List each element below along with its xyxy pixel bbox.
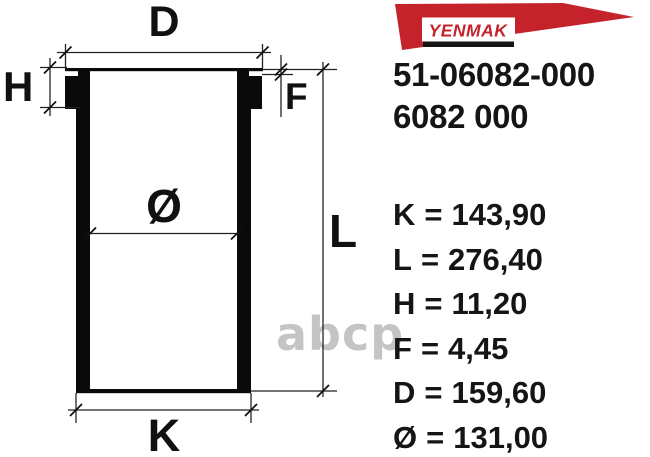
part-number-secondary: 6082 000 xyxy=(393,96,595,138)
liner-right-wall xyxy=(237,109,251,390)
label-collar-step: F xyxy=(285,78,308,115)
spec-row-l: L=276,40 xyxy=(393,238,548,283)
spec-value: 159,60 xyxy=(452,375,547,410)
liner-left-wall xyxy=(76,109,90,390)
spec-row-k: K=143,90 xyxy=(393,193,548,238)
spec-name: L xyxy=(393,242,412,277)
label-flange-height: H xyxy=(3,66,33,108)
spec-name: D xyxy=(393,375,415,410)
spec-separator: = xyxy=(426,420,444,455)
spec-value: 276,40 xyxy=(448,242,543,277)
spec-separator: = xyxy=(424,286,442,321)
spec-separator: = xyxy=(421,331,439,366)
spec-separator: = xyxy=(424,375,442,410)
label-body-diameter: K xyxy=(138,413,190,457)
spec-value: 11,20 xyxy=(452,286,528,321)
spec-list: K=143,90 L=276,40 H=11,20 F=4,45 D=159,6… xyxy=(393,193,548,457)
spec-name: F xyxy=(393,331,412,366)
spec-separator: = xyxy=(424,197,442,232)
spec-row-bore: Ø=131,00 xyxy=(393,416,548,457)
catalog-image: abcp xyxy=(0,0,650,457)
label-flange-diameter: D xyxy=(139,1,189,44)
brand-logo: YENMAK xyxy=(395,3,634,50)
part-numbers: 51-06082-000 6082 000 xyxy=(393,54,595,138)
label-total-length: L xyxy=(329,208,357,254)
spec-row-h: H=11,20 xyxy=(393,282,548,327)
spec-separator: = xyxy=(421,242,439,277)
spec-value: 143,90 xyxy=(452,197,547,232)
liner-bottom-edge xyxy=(76,389,251,393)
spec-name: H xyxy=(393,286,415,321)
logo-wordmark: YENMAK xyxy=(429,21,509,41)
liner-right-flange xyxy=(237,71,262,109)
spec-value: 131,00 xyxy=(453,420,548,455)
liner-left-flange xyxy=(65,71,90,109)
spec-name: K xyxy=(393,197,415,232)
spec-value: 4,45 xyxy=(448,331,508,366)
spec-row-f: F=4,45 xyxy=(393,327,548,372)
label-bore-diameter: Ø xyxy=(138,183,190,229)
logo-black-bar xyxy=(423,42,514,48)
liner-top-rim xyxy=(65,68,263,71)
spec-row-d: D=159,60 xyxy=(393,371,548,416)
part-number-primary: 51-06082-000 xyxy=(393,54,595,96)
spec-name: Ø xyxy=(393,420,417,455)
